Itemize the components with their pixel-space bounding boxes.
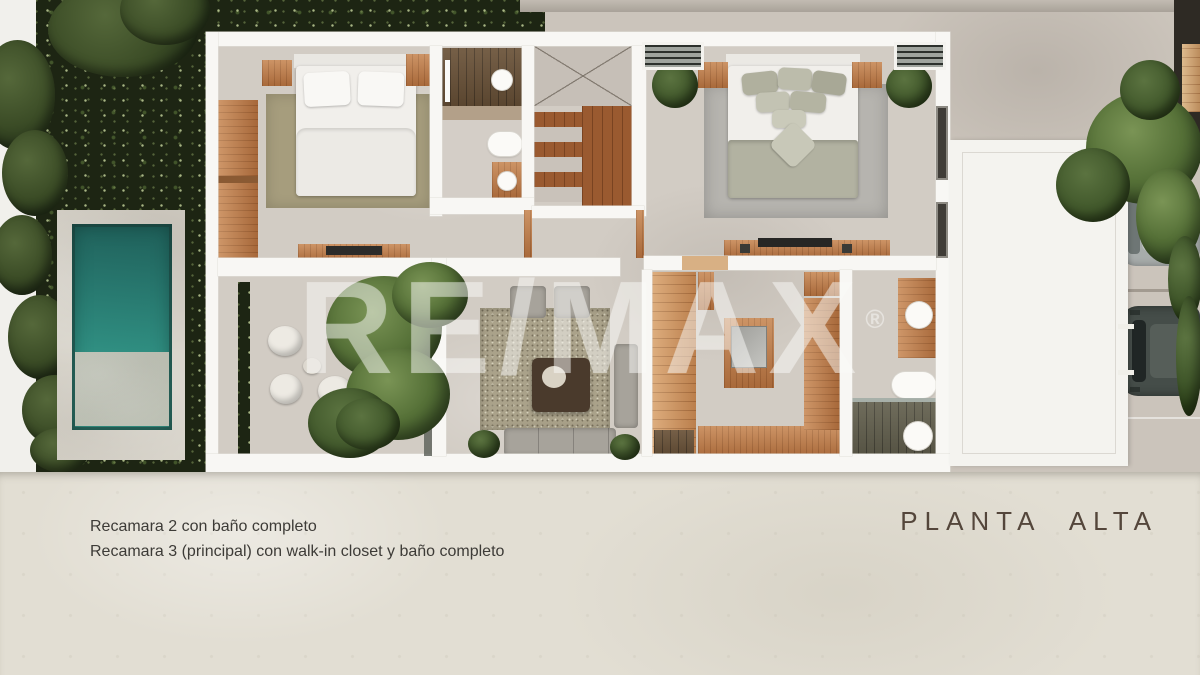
wall-stairs-bed3 bbox=[632, 46, 646, 216]
pillow bbox=[777, 67, 812, 91]
bedroom2-bed bbox=[296, 66, 416, 196]
bedroom2-wardrobe bbox=[218, 100, 258, 260]
bathroom2-tub bbox=[488, 132, 522, 156]
shower-bar bbox=[445, 60, 450, 102]
bathroom2-vanity-sink bbox=[498, 172, 516, 190]
wall-bath2-stairs bbox=[522, 46, 534, 214]
bedroom3-nightstand bbox=[852, 62, 882, 88]
pool-shallow-ledge bbox=[75, 352, 169, 426]
watermark-brand-text: RE/MAX bbox=[298, 254, 865, 401]
wall-bed2-bath2 bbox=[430, 46, 442, 216]
street-tree bbox=[1056, 148, 1130, 222]
bedroom3-bed bbox=[728, 66, 858, 198]
parking-marker bbox=[1118, 370, 1134, 375]
street-tree bbox=[1120, 60, 1180, 120]
floor-plan-render-page: RE/MAX® Recamara 2 con baño completo Rec… bbox=[0, 0, 1200, 675]
remax-watermark: RE/MAX® bbox=[298, 262, 885, 394]
stair-tread bbox=[534, 112, 582, 127]
stair-tread bbox=[534, 187, 582, 202]
caption-line-1: Recamara 2 con baño completo bbox=[90, 514, 504, 539]
caption-block: Recamara 2 con baño completo Recamara 3 … bbox=[90, 514, 504, 564]
terrace-green-wall bbox=[238, 282, 250, 456]
paving-joint-line bbox=[1128, 417, 1200, 419]
speaker bbox=[842, 244, 852, 253]
stair-tread bbox=[534, 142, 582, 157]
caption-line-2: Recamara 3 (principal) con walk-in close… bbox=[90, 539, 504, 564]
window bbox=[936, 106, 948, 180]
bathroom2-shower-floor-light bbox=[442, 106, 522, 120]
footer-band: Recamara 2 con baño completo Recamara 3 … bbox=[0, 472, 1200, 675]
stair-landing-void bbox=[534, 46, 632, 106]
stair-tread bbox=[534, 172, 582, 187]
bathroom3-shower-tray bbox=[904, 422, 932, 450]
stair-wood-landing bbox=[582, 106, 632, 206]
speaker bbox=[740, 244, 750, 253]
pool bbox=[72, 224, 172, 430]
bedroom3-tv bbox=[758, 238, 832, 247]
potted-plant bbox=[468, 430, 500, 458]
wall-outer-top bbox=[206, 32, 950, 46]
terrace-chair bbox=[268, 326, 302, 356]
render-area: RE/MAX® bbox=[0, 0, 1200, 472]
bathroom2-sink bbox=[492, 70, 512, 90]
wall-stairs-bottom bbox=[532, 206, 644, 218]
tan-wood-panel bbox=[1182, 44, 1200, 112]
stair-tread bbox=[534, 127, 582, 142]
stair-tread bbox=[534, 157, 582, 172]
bedroom2-nightstand bbox=[406, 54, 432, 86]
potted-plant bbox=[610, 434, 640, 460]
plan-title: PLANTA ALTA bbox=[900, 506, 1158, 537]
car-windshield bbox=[1132, 320, 1146, 382]
bathroom3-toilet bbox=[892, 372, 936, 398]
parking-marker bbox=[1118, 324, 1134, 329]
duvet bbox=[296, 128, 416, 196]
bathroom3-sink bbox=[906, 302, 932, 328]
roof-edge-strip bbox=[520, 0, 1200, 12]
wall-bath2-bottom bbox=[430, 198, 534, 214]
terrace-fern bbox=[336, 398, 400, 450]
potted-plant bbox=[886, 64, 932, 108]
balcony-railing bbox=[642, 42, 704, 70]
pillow bbox=[303, 71, 351, 107]
car-mirror bbox=[1130, 310, 1140, 315]
sofa bbox=[504, 428, 616, 456]
pillow bbox=[357, 71, 404, 107]
wall-outer-left bbox=[206, 32, 218, 472]
wall-outer-bottom bbox=[206, 454, 950, 472]
window bbox=[936, 202, 948, 258]
door-jamb bbox=[636, 210, 644, 258]
door-jamb bbox=[524, 210, 532, 258]
car-mirror bbox=[1130, 387, 1140, 392]
registered-trademark-icon: ® bbox=[865, 304, 884, 334]
palm-plant bbox=[2, 130, 68, 216]
street-tree-branch bbox=[1176, 296, 1200, 416]
bedroom2-nightstand bbox=[262, 60, 292, 86]
wardrobe-shelf-line bbox=[218, 176, 258, 183]
balcony-railing bbox=[894, 42, 946, 70]
